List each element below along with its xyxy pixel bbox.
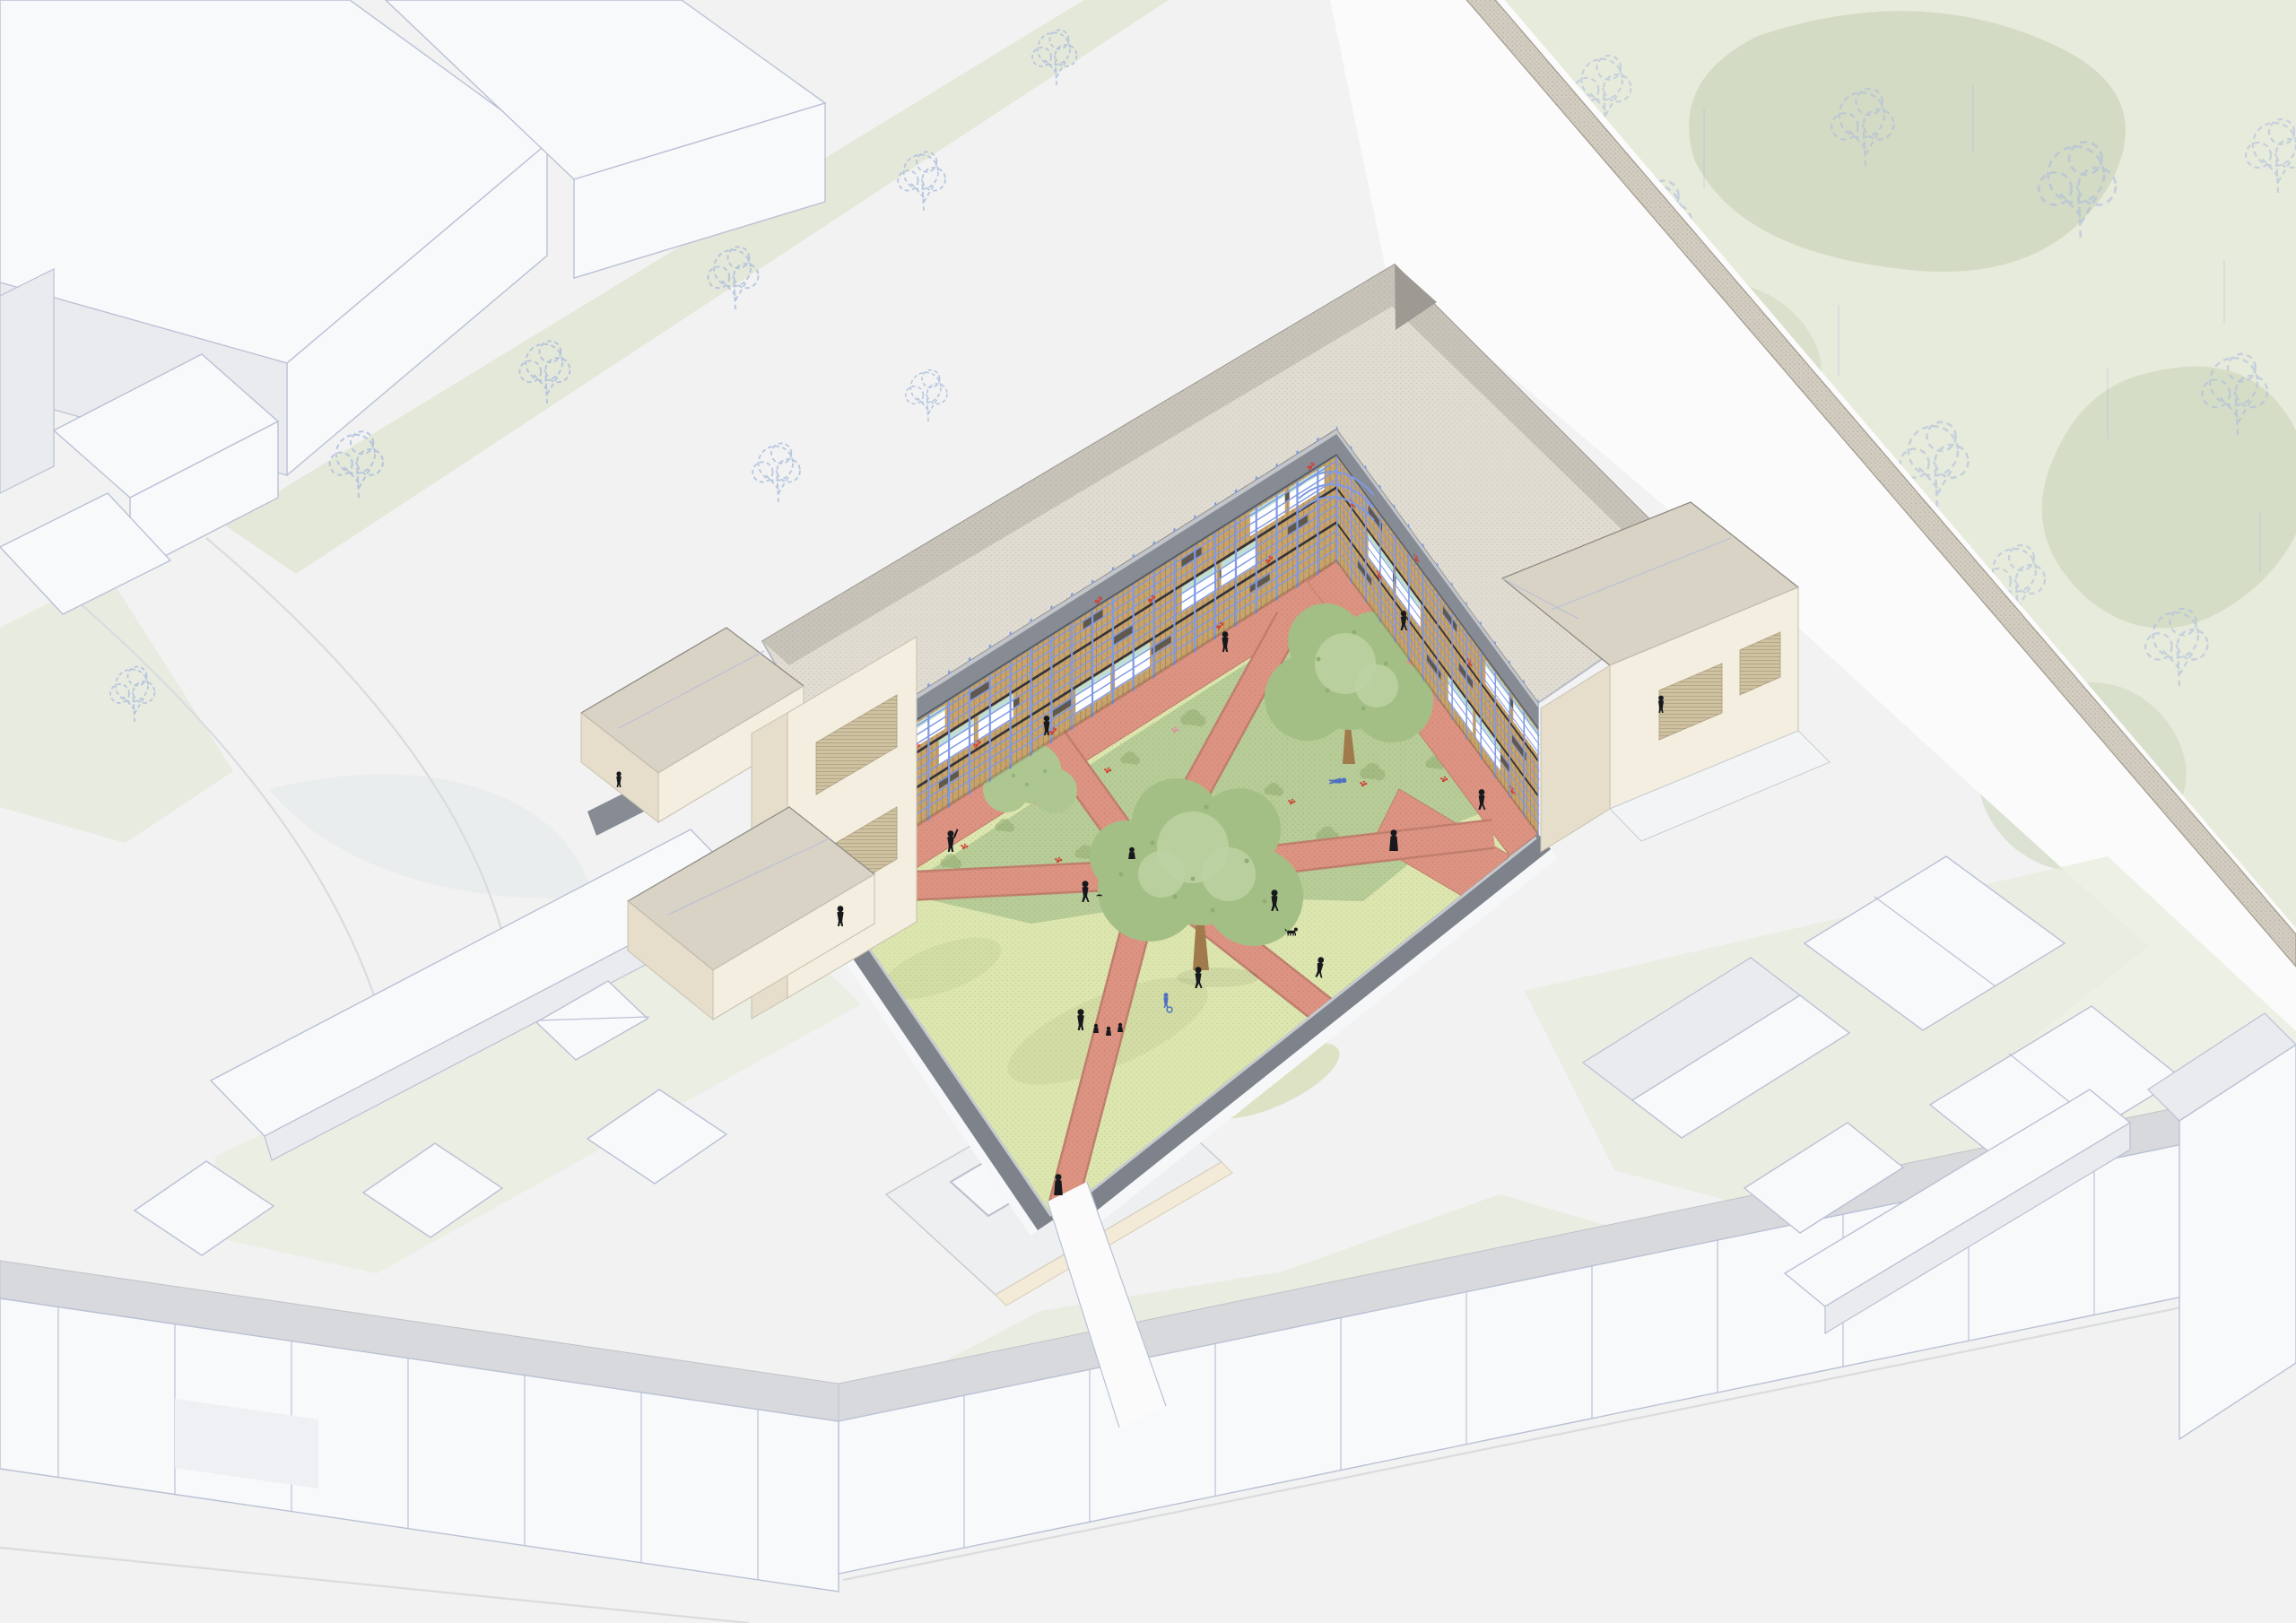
axonometric-site-rendering (0, 0, 2296, 1623)
site-plan-canvas (0, 0, 2296, 1623)
